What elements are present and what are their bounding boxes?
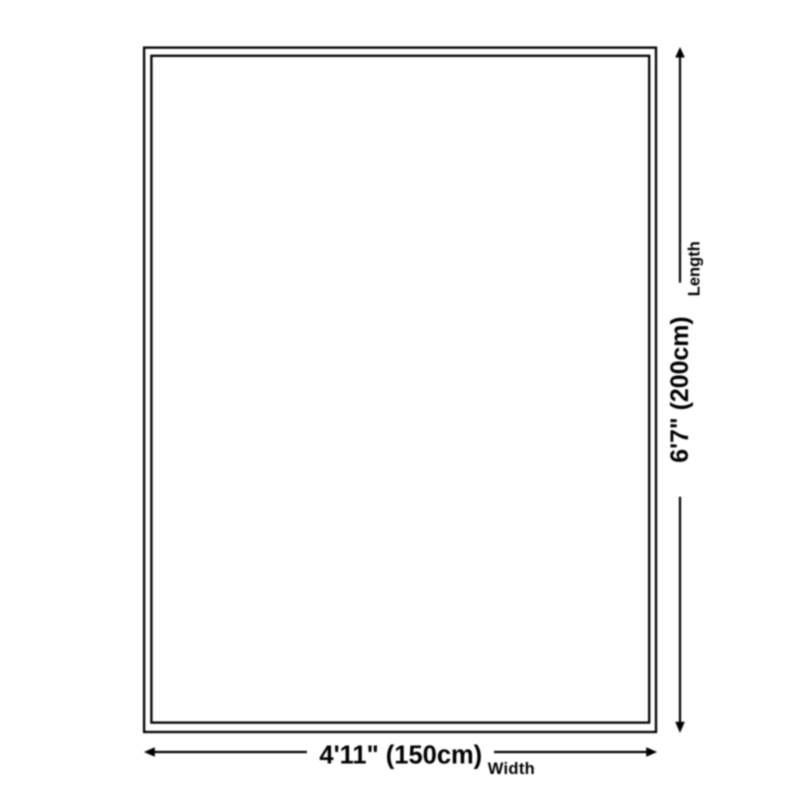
svg-text:Width: Width bbox=[488, 760, 535, 778]
svg-text:Length: Length bbox=[685, 241, 703, 296]
svg-text:4'11" (150cm): 4'11" (150cm) bbox=[319, 742, 482, 770]
svg-text:6'7" (200cm): 6'7" (200cm) bbox=[666, 316, 694, 462]
